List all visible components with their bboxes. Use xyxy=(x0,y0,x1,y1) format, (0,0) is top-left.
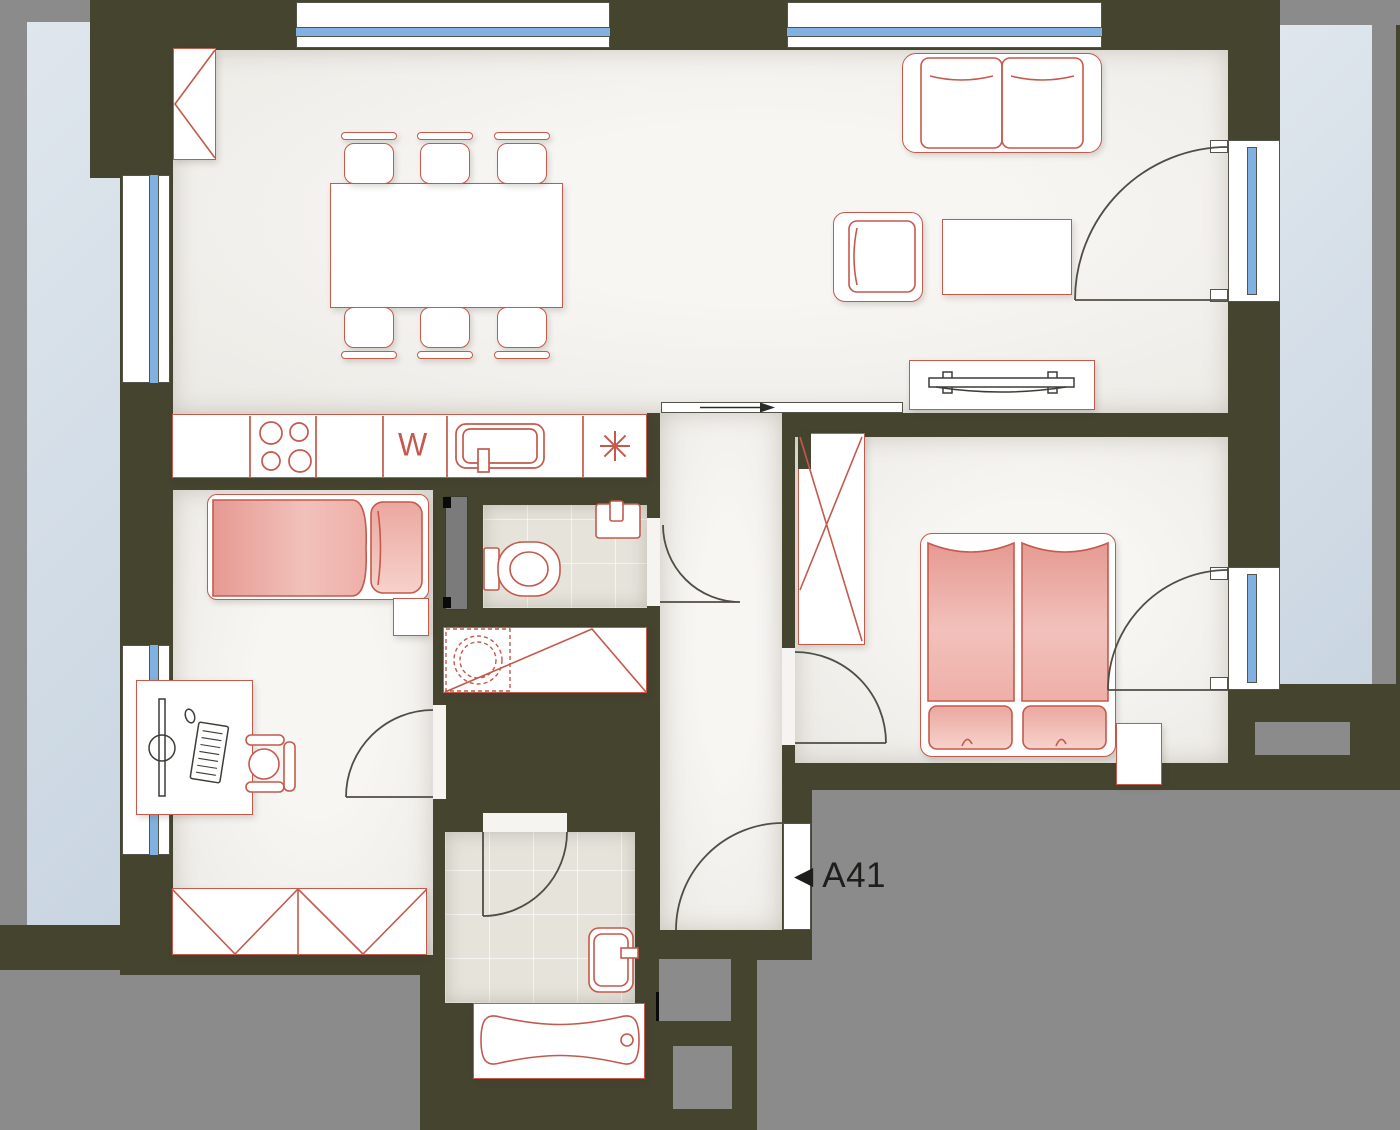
chair xyxy=(341,132,397,140)
sliding-door xyxy=(661,402,903,413)
window-glass xyxy=(296,27,610,37)
armchair xyxy=(833,212,923,302)
exterior-block xyxy=(673,1046,732,1109)
floorplan: W ◀ A41 xyxy=(0,0,1400,1130)
wall-edge-right xyxy=(1396,25,1400,684)
shaft-mark xyxy=(443,497,451,508)
wall xyxy=(0,925,173,970)
door-jamb-cap xyxy=(1210,289,1228,302)
window-glass xyxy=(149,175,159,383)
window-left-upper xyxy=(122,175,170,383)
chair xyxy=(494,132,550,140)
master-bedroom-door-opening xyxy=(782,648,795,745)
nightstand xyxy=(393,598,429,636)
balcony-frame-left xyxy=(0,0,27,925)
wall-notch xyxy=(798,433,811,469)
small-bedroom-door-opening xyxy=(433,705,446,799)
chair xyxy=(417,132,473,140)
wardrobe-small-bedroom xyxy=(172,888,427,955)
chair xyxy=(341,351,397,359)
window-top-right xyxy=(787,2,1102,48)
exterior-strip-right-top xyxy=(1280,0,1400,25)
installation-shaft xyxy=(445,496,468,610)
bathroom-door-opening xyxy=(483,813,567,832)
wardrobe-living xyxy=(173,48,216,160)
hallway-floor xyxy=(660,413,782,930)
balcony-frame-right xyxy=(1372,25,1396,684)
nightstand xyxy=(1116,723,1162,785)
bathtub-zone xyxy=(473,1003,645,1079)
exterior-block xyxy=(659,959,731,1021)
exterior-bottom-right xyxy=(812,790,1400,1130)
window-glass xyxy=(787,27,1102,37)
window-top-left xyxy=(296,2,610,48)
utility-counter xyxy=(443,627,647,693)
bathroom-floor xyxy=(445,832,635,1003)
chair xyxy=(494,351,550,359)
dishwasher-symbol: W xyxy=(398,428,427,461)
chair xyxy=(497,143,547,184)
balcony-door-living xyxy=(1228,140,1280,302)
chair xyxy=(344,143,394,184)
single-bed xyxy=(207,494,429,600)
exterior-below-entrance xyxy=(757,960,812,1130)
sofa xyxy=(902,53,1102,153)
chair xyxy=(497,307,547,348)
dining-table xyxy=(330,183,563,308)
coffee-table xyxy=(942,219,1072,295)
door-jamb-cap xyxy=(1210,677,1228,690)
exterior-bottom-left xyxy=(0,970,423,1130)
chair xyxy=(420,307,470,348)
balcony-planter xyxy=(1255,722,1350,755)
chair xyxy=(420,143,470,184)
wc-door-opening xyxy=(647,518,660,606)
balcony-right xyxy=(1280,25,1372,684)
door-jamb-cap xyxy=(1210,567,1228,580)
door-jamb-cap xyxy=(1210,140,1228,153)
unit-number: A41 xyxy=(822,858,886,893)
window-glass xyxy=(1247,147,1257,295)
wc-floor xyxy=(483,505,647,608)
wall xyxy=(90,0,173,178)
tv-sideboard xyxy=(909,360,1095,410)
balcony-door-bedroom xyxy=(1228,567,1280,690)
entrance-arrow-icon: ◀ xyxy=(794,863,813,888)
double-bed xyxy=(920,533,1116,757)
shaft-mark xyxy=(443,597,451,608)
chair xyxy=(417,351,473,359)
window-glass xyxy=(1247,574,1257,683)
wall xyxy=(757,930,812,960)
entrance-label: ◀ A41 xyxy=(794,858,886,893)
chair xyxy=(344,307,394,348)
desk xyxy=(136,680,253,815)
